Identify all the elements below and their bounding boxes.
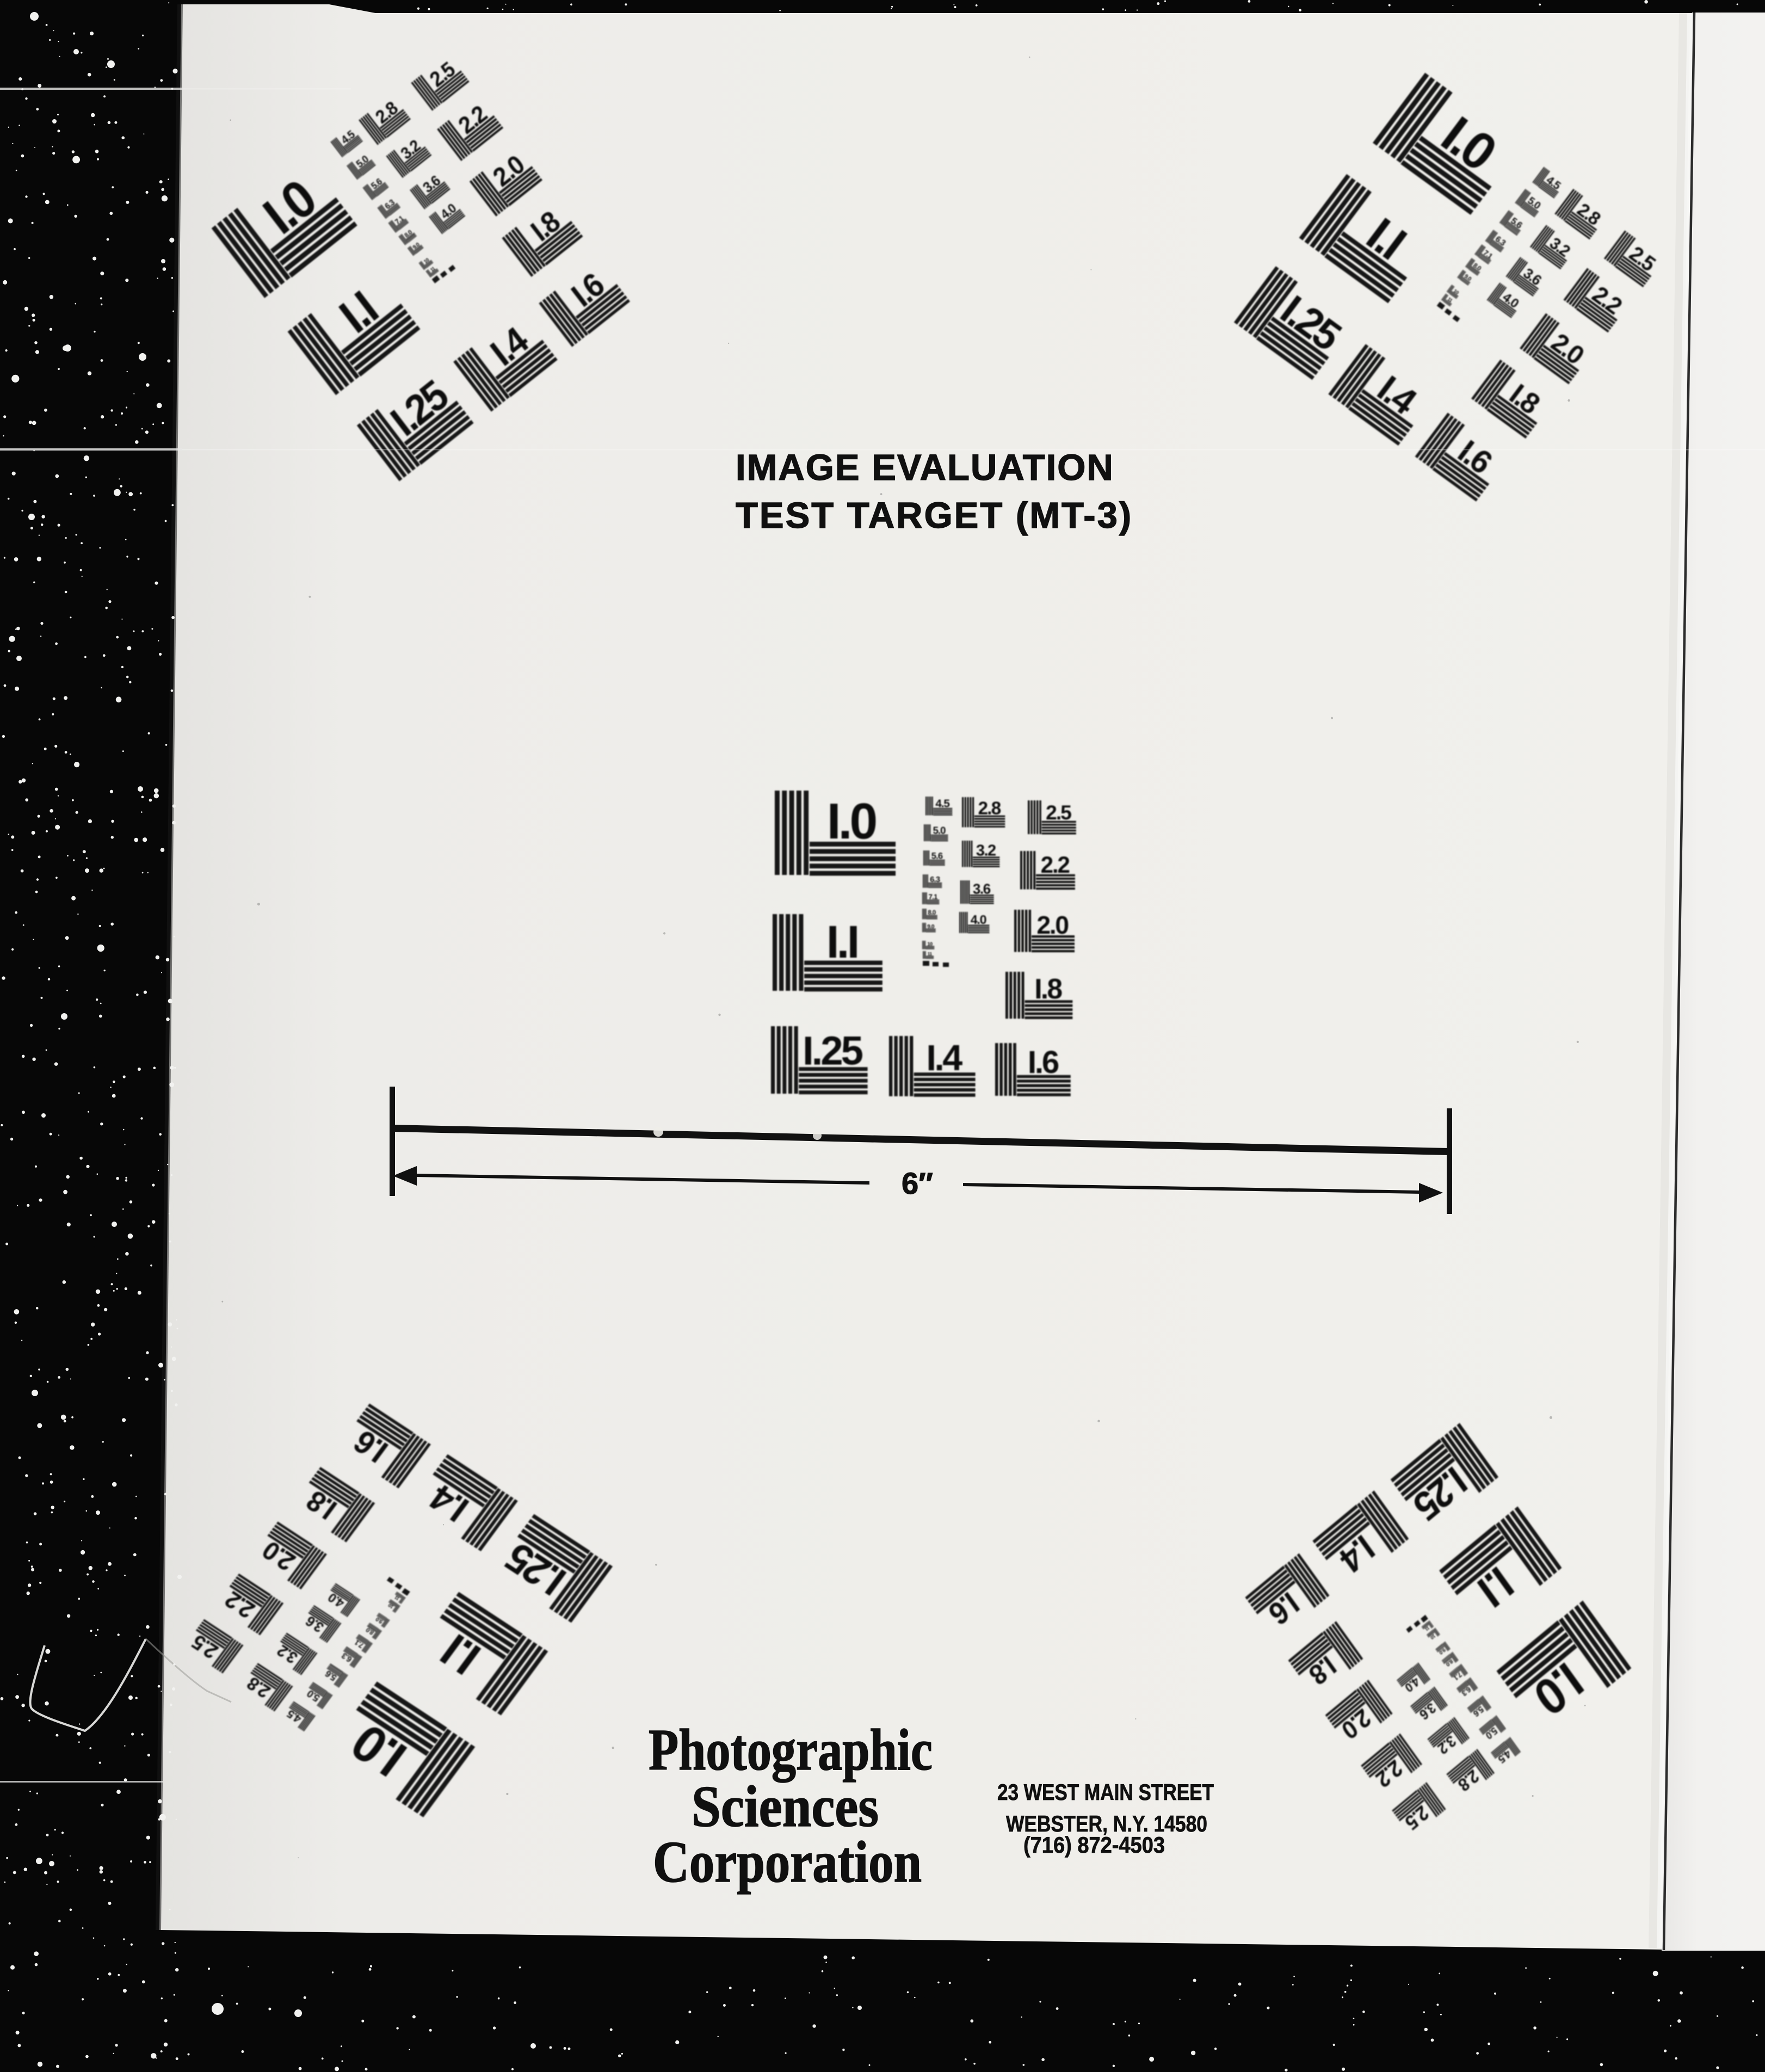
- svg-text:(716) 872-4503: (716) 872-4503: [1023, 1832, 1165, 1858]
- svg-text:IMAGE EVALUATION: IMAGE EVALUATION: [736, 447, 1114, 488]
- svg-text:TEST TARGET (MT-3): TEST TARGET (MT-3): [736, 495, 1133, 536]
- svg-text:Photographic: Photographic: [649, 1718, 933, 1783]
- svg-text:23 WEST MAIN STREET: 23 WEST MAIN STREET: [997, 1779, 1214, 1805]
- svg-text:6″: 6″: [902, 1166, 933, 1200]
- svg-text:Corporation: Corporation: [653, 1830, 922, 1895]
